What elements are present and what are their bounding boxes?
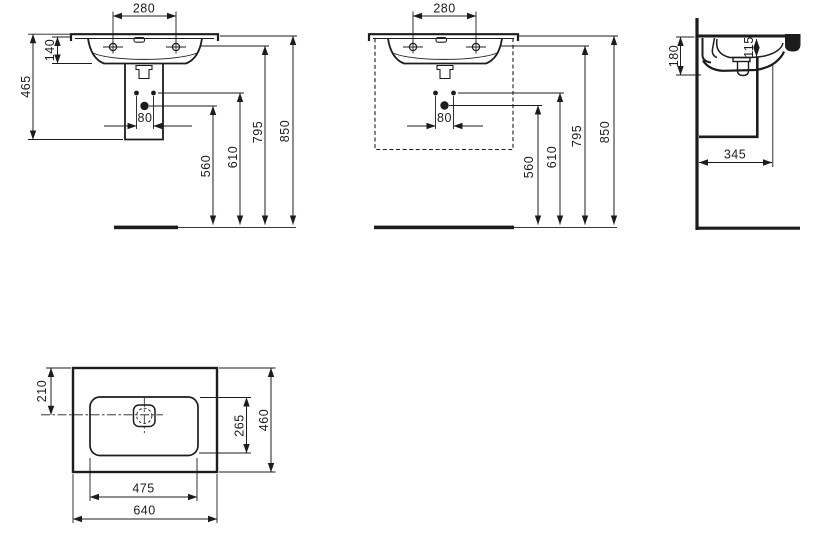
trap-cover	[125, 63, 163, 140]
dim-cabinet-tap-spacing: 280	[433, 2, 455, 16]
front-rim-lip	[785, 34, 801, 52]
dim-cabinet-fixing-height: 610	[545, 146, 559, 168]
dim-cabinet-fixing-spacing: 80	[437, 111, 452, 125]
dim-side-projection: 345	[724, 148, 746, 162]
washbasin-technical-drawing: 280 140 465 80 560 610 795 850 280 80 56…	[0, 0, 829, 549]
dim-front-rim-top-height: 850	[278, 120, 292, 142]
waste-trap	[738, 62, 749, 76]
dim-front-fixing-height: 610	[226, 146, 240, 168]
dim-plan-overall-depth: 460	[257, 409, 271, 431]
waste-tailpiece	[437, 66, 453, 79]
front-view	[28, 12, 297, 230]
dim-front-waste-height: 560	[199, 155, 213, 177]
fixing-hole	[433, 91, 438, 96]
dim-plan-waste-offset: 210	[35, 380, 49, 402]
dim-plan-overall-width: 640	[133, 504, 155, 518]
side-view	[676, 18, 801, 230]
dim-front-rim-underside-height: 795	[251, 121, 265, 143]
dim-front-basin-height: 140	[43, 39, 57, 61]
drawing-sheet: 280 140 465 80 560 610 795 850 280 80 56…	[0, 0, 829, 549]
fixing-hole	[134, 91, 139, 96]
dim-side-bowl-depth: 115	[742, 36, 756, 57]
plan-view	[41, 368, 276, 523]
dim-cabinet-rim-underside-height: 795	[570, 125, 584, 147]
dim-front-fixing-spacing: 80	[138, 111, 153, 125]
waste-tailpiece	[136, 66, 152, 79]
fixing-hole	[151, 91, 156, 96]
dim-plan-bowl-depth: 265	[233, 414, 247, 436]
floor-line	[114, 226, 178, 230]
waste-outlet	[140, 102, 148, 110]
worktop-outline	[73, 368, 217, 472]
dim-cabinet-waste-height: 560	[522, 156, 536, 178]
fixing-hole	[451, 91, 456, 96]
dim-side-front-height: 180	[667, 45, 681, 67]
dimension-labels: 280 140 465 80 560 610 795 850 280 80 56…	[19, 2, 756, 518]
basin-back-section	[703, 38, 712, 63]
dim-front-tap-spacing: 280	[133, 2, 155, 16]
floor-line	[374, 226, 514, 230]
cabinet-outline	[375, 39, 513, 150]
front-view-with-cabinet	[369, 12, 618, 230]
waste-outlet	[440, 101, 448, 109]
dim-plan-bowl-width: 475	[132, 482, 154, 496]
dim-front-under-basin-height: 465	[19, 75, 33, 97]
dim-cabinet-rim-top-height: 850	[598, 121, 612, 143]
